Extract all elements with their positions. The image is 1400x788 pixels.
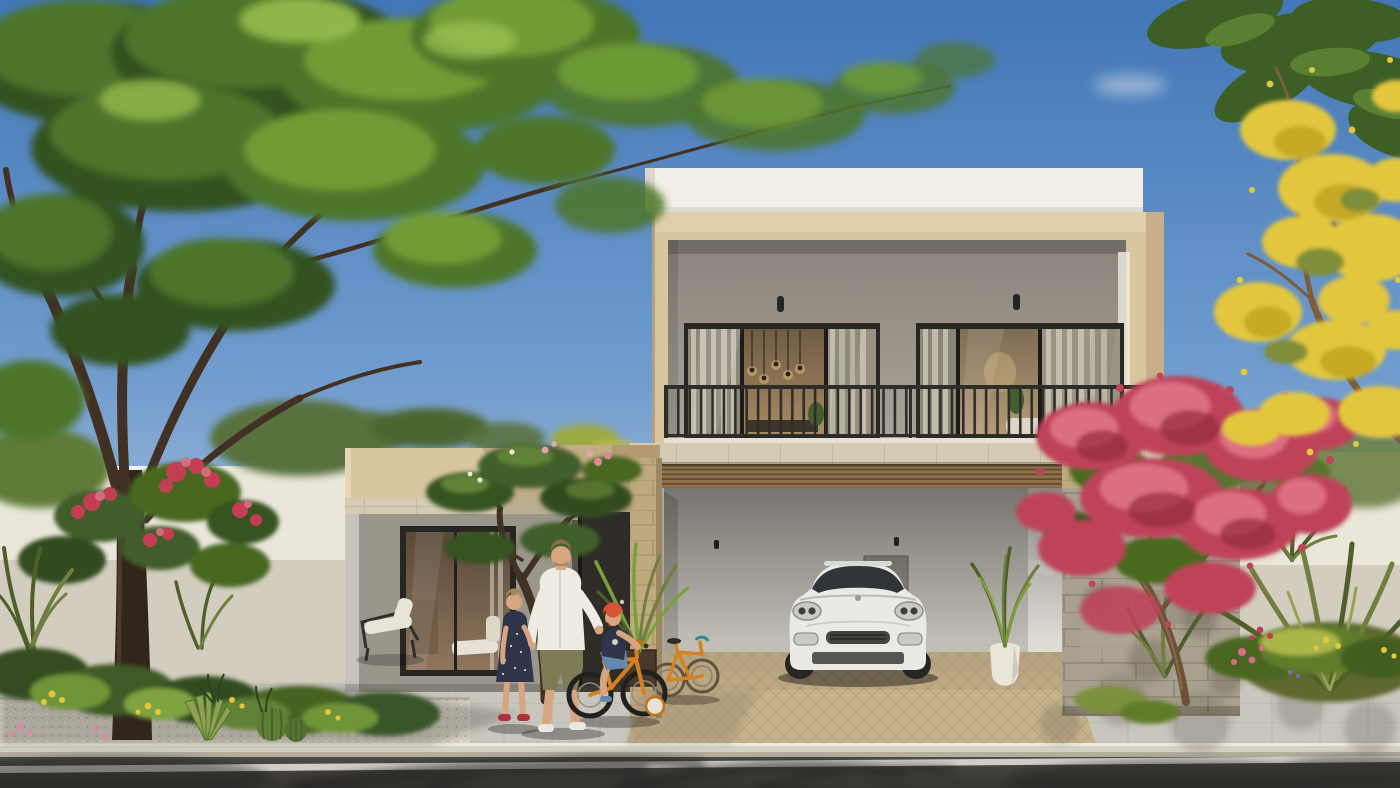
villa-exterior-rendering [0,0,1400,788]
atmosphere-overlay [0,0,1400,788]
scene-canvas [0,0,1400,788]
